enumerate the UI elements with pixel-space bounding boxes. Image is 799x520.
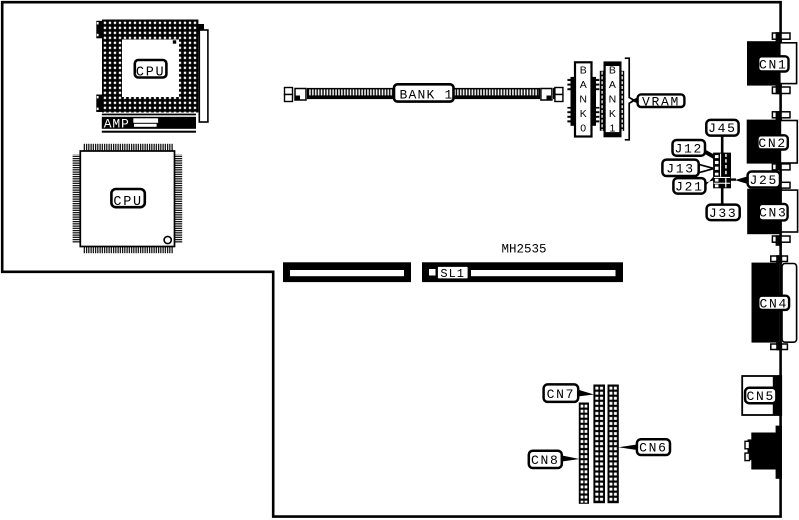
svg-text:0: 0 <box>580 123 586 135</box>
svg-text:B: B <box>609 65 616 77</box>
svg-text:K: K <box>580 108 587 120</box>
svg-text:VRAM: VRAM <box>642 95 680 110</box>
svg-text:AMP: AMP <box>104 116 130 131</box>
svg-text:MH2535: MH2535 <box>502 243 547 257</box>
svg-text:B: B <box>580 65 587 77</box>
svg-text:J13: J13 <box>666 161 695 176</box>
svg-text:J25: J25 <box>750 173 779 188</box>
svg-text:BANK 1: BANK 1 <box>399 88 453 103</box>
svg-text:CPU: CPU <box>113 195 142 210</box>
svg-text:A: A <box>580 79 587 91</box>
svg-text:J45: J45 <box>708 121 737 136</box>
svg-text:N: N <box>579 94 587 106</box>
svg-text:CN7: CN7 <box>547 387 576 402</box>
svg-text:SL1: SL1 <box>440 267 465 281</box>
svg-text:CN4: CN4 <box>759 296 788 311</box>
svg-text:CN8: CN8 <box>531 453 560 468</box>
svg-text:N: N <box>609 94 617 106</box>
svg-text:A: A <box>609 79 616 91</box>
svg-text:1: 1 <box>609 123 615 135</box>
svg-text:CN3: CN3 <box>759 206 788 221</box>
svg-text:CN2: CN2 <box>758 136 787 151</box>
svg-text:CN6: CN6 <box>639 441 668 456</box>
svg-text:J21: J21 <box>675 179 704 194</box>
svg-text:K: K <box>609 108 616 120</box>
svg-text:CN5: CN5 <box>746 389 775 404</box>
svg-text:CPU: CPU <box>136 65 165 80</box>
svg-text:CN1: CN1 <box>759 57 788 72</box>
svg-text:J33: J33 <box>709 206 738 221</box>
svg-text:J12: J12 <box>674 142 703 157</box>
